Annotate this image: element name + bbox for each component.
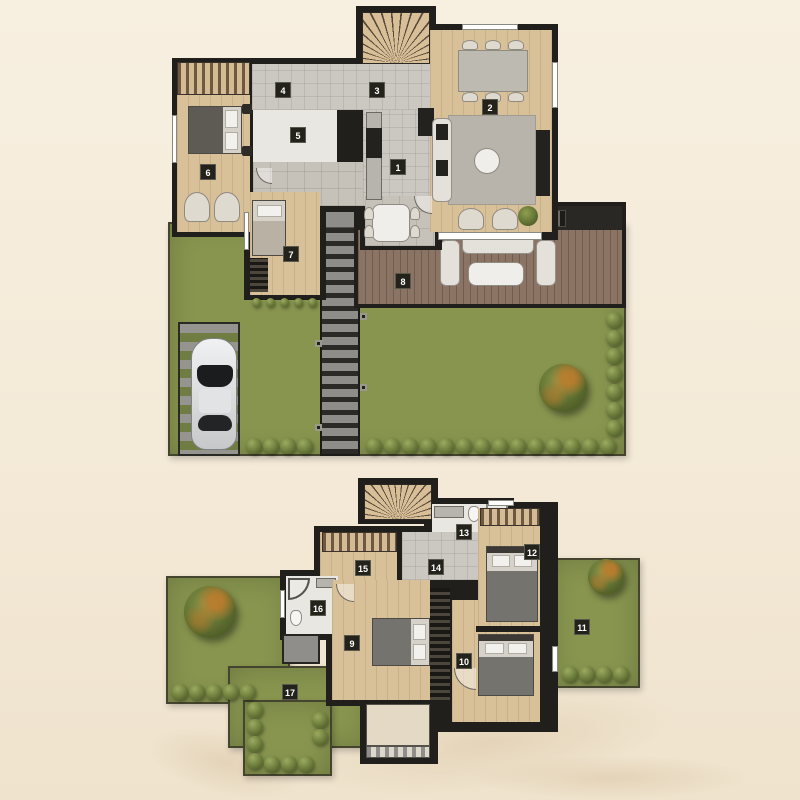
- wardrobe: [480, 508, 540, 526]
- room-badge-1: 1: [390, 159, 406, 175]
- bush: [312, 712, 328, 728]
- staircase: [364, 484, 432, 520]
- window: [280, 590, 285, 618]
- window: [488, 500, 514, 506]
- room-badge-7: 7: [283, 246, 299, 262]
- bed-headboard: [479, 635, 533, 641]
- window: [552, 646, 558, 672]
- bush: [562, 666, 578, 682]
- wardrobe: [322, 532, 397, 552]
- bush: [312, 729, 328, 745]
- bed-pillow: [508, 643, 527, 654]
- bed: [372, 618, 430, 666]
- bush: [240, 684, 256, 700]
- room-badge-11: 11: [574, 619, 590, 635]
- room-badge-9: 9: [344, 635, 360, 651]
- room-badge-16: 16: [310, 600, 326, 616]
- room-badge-10: 10: [456, 653, 472, 669]
- bed: [478, 634, 534, 696]
- first-floor-plan: 9 10 11 12 13 14 15 16 17: [0, 0, 800, 800]
- bush: [281, 756, 297, 772]
- floorplan-canvas: 1 2 3 4 5 6 7 8: [0, 0, 800, 800]
- room-badge-4: 4: [275, 82, 291, 98]
- bush: [247, 702, 263, 718]
- wall: [476, 626, 542, 632]
- room-badge-6: 6: [200, 164, 216, 180]
- bed-blanket: [479, 657, 533, 695]
- tree: [588, 559, 624, 595]
- bush: [206, 684, 222, 700]
- room-badge-5: 5: [290, 127, 306, 143]
- room-badge-2: 2: [482, 99, 498, 115]
- bed-blanket: [373, 619, 411, 665]
- room-badge-17: 17: [282, 684, 298, 700]
- bush: [264, 756, 280, 772]
- bush: [247, 753, 263, 769]
- wardrobe: [430, 588, 450, 700]
- room-badge-12: 12: [524, 544, 540, 560]
- bush: [579, 666, 595, 682]
- tree: [184, 586, 236, 638]
- bush: [172, 684, 188, 700]
- room-badge-8: 8: [395, 273, 411, 289]
- bush: [247, 736, 263, 752]
- bush: [596, 666, 612, 682]
- balcony: [282, 634, 320, 664]
- toilet: [290, 610, 302, 626]
- balcony-railing: [366, 746, 430, 758]
- room-badge-14: 14: [428, 559, 444, 575]
- room-badge-13: 13: [456, 524, 472, 540]
- bed-blanket: [487, 571, 537, 621]
- bush: [298, 756, 314, 772]
- bed-pillow: [413, 624, 426, 640]
- bed-pillow: [413, 644, 426, 660]
- bush: [223, 684, 239, 700]
- bed-pillow: [492, 555, 510, 567]
- bush: [189, 684, 205, 700]
- room-badge-3: 3: [369, 82, 385, 98]
- bed-pillow: [485, 643, 504, 654]
- bush: [247, 719, 263, 735]
- room-badge-15: 15: [355, 560, 371, 576]
- bush: [613, 666, 629, 682]
- terrace-floor: [366, 704, 430, 746]
- vanity: [434, 506, 464, 518]
